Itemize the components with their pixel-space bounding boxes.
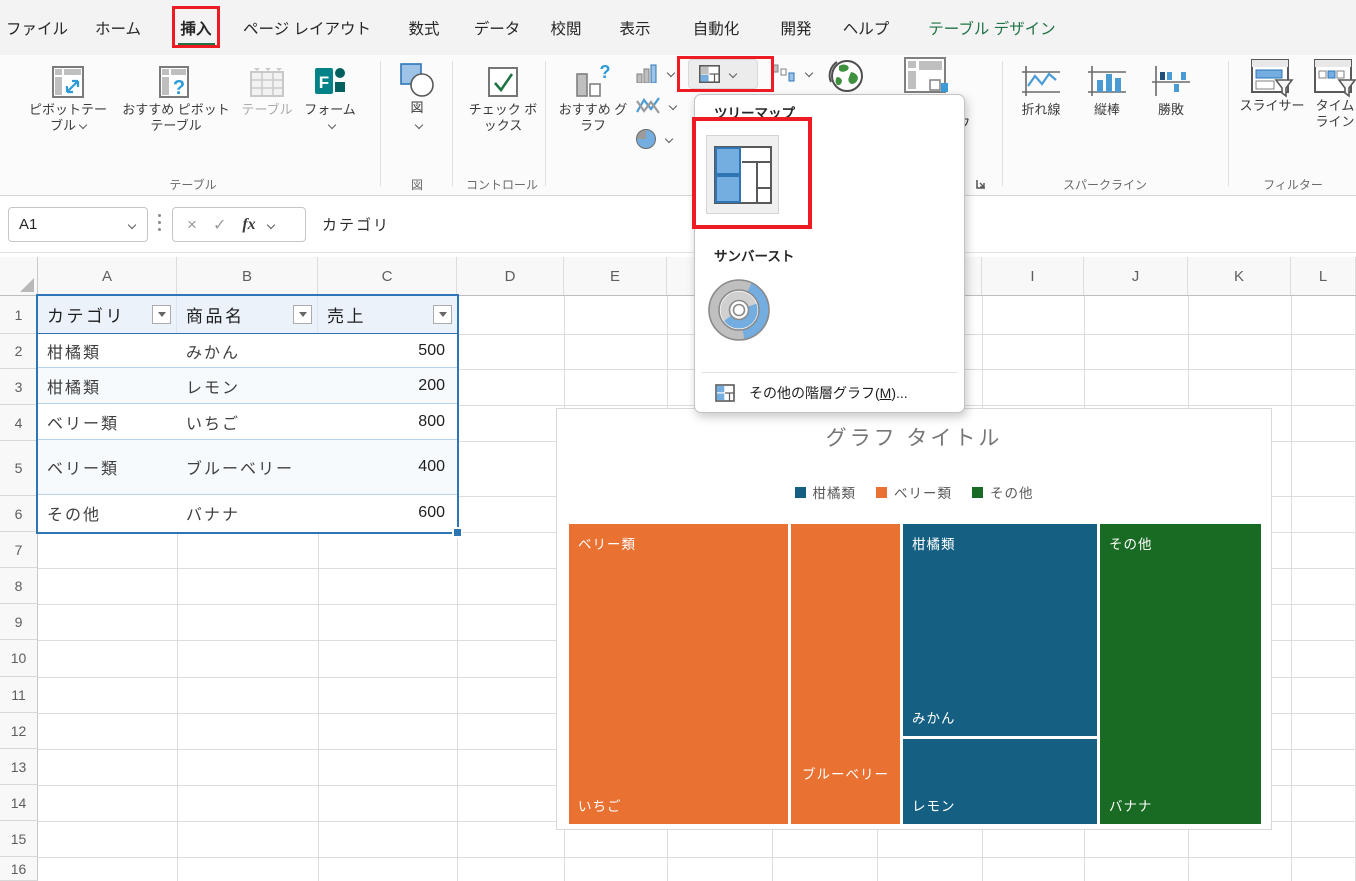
waterfall-chart-icon: [772, 63, 796, 83]
tab-page-layout[interactable]: ページ レイアウト: [243, 0, 371, 55]
legend-label: ベリー類: [894, 482, 952, 502]
cell-c4[interactable]: 800: [318, 404, 457, 439]
pivot-table-button[interactable]: ピボットテーブル: [26, 62, 110, 134]
column-header-d[interactable]: D: [457, 257, 564, 295]
group-separator: [1002, 61, 1003, 186]
sparkline-winloss-icon: [1140, 62, 1202, 102]
checkbox-button[interactable]: チェック ボックス: [466, 62, 540, 134]
table-row: ベリー類 いちご 800: [38, 404, 457, 440]
pivot-chart-button[interactable]: [903, 56, 949, 99]
group-label-table: テーブル: [133, 176, 253, 193]
recommended-chart-button[interactable]: ? おすすめ グラフ: [556, 62, 630, 134]
svg-text:?: ?: [600, 64, 611, 82]
cell-b5[interactable]: ブルーベリー: [177, 440, 318, 494]
chevron-down-icon: [667, 69, 675, 77]
legend-item[interactable]: ベリー類: [876, 482, 952, 502]
recommended-pivot-icon: ?: [118, 62, 234, 102]
treemap-item-label: みかん: [912, 707, 956, 727]
column-header-c[interactable]: C: [318, 257, 457, 295]
group-separator: [380, 61, 381, 186]
annotation-box-treemap-option: [692, 117, 812, 229]
table-label: テーブル: [241, 102, 292, 117]
forms-button[interactable]: F フォーム: [304, 62, 356, 134]
svg-text:?: ?: [173, 77, 185, 99]
globe-icon: [827, 57, 865, 95]
annotation-box-insert-tab: [172, 6, 220, 48]
header-text: 商品名: [186, 302, 245, 327]
more-hierarchy-icon: [715, 384, 735, 402]
cell-a5[interactable]: ベリー類: [38, 440, 177, 494]
charts-dialog-launcher-icon[interactable]: [974, 177, 988, 191]
sunburst-gallery-icon: [708, 279, 770, 341]
treemap-category-label: その他: [1109, 533, 1153, 553]
row-header-6[interactable]: 6: [0, 496, 38, 532]
group-label-sparklines: スパークライン: [1040, 176, 1170, 193]
tab-file[interactable]: ファイル: [6, 0, 68, 55]
illustrations-label: 図: [410, 100, 423, 115]
header-text: カテゴリ: [47, 302, 125, 327]
sparkline-winloss-label: 勝敗: [1158, 102, 1184, 117]
header-text: 売上: [327, 302, 366, 327]
recommended-pivot-button[interactable]: ? おすすめ ピボットテーブル: [118, 62, 234, 134]
group-label-controls: コントロール: [442, 176, 562, 193]
treemap-category-label: 柑橘類: [912, 533, 956, 553]
chart-title[interactable]: グラフ タイトル: [557, 422, 1271, 452]
cell-b3[interactable]: レモン: [177, 368, 318, 403]
formula-input[interactable]: カテゴリ: [322, 196, 390, 253]
chevron-down-icon: [665, 135, 673, 143]
more-hierarchy-label: その他の階層グラフ(M)...: [749, 383, 908, 403]
sparkline-line-icon: [1010, 62, 1072, 102]
column-header-i[interactable]: I: [982, 257, 1084, 295]
table-row: 柑橘類 みかん 500: [38, 334, 457, 368]
group-separator: [1228, 61, 1229, 186]
excel-table: カテゴリ 商品名 売上 柑橘類 みかん 500 柑橘類 レモン 200 ベリー類…: [38, 296, 457, 532]
treemap-block-banana[interactable]: その他 バナナ: [1100, 524, 1261, 824]
column-headers: A B C D E F G H I J K L: [0, 257, 1356, 296]
treemap-block-blueberry[interactable]: ブルーベリー: [791, 524, 900, 824]
slicer-button[interactable]: スライサー: [1238, 58, 1306, 114]
sunburst-chart-option[interactable]: [708, 279, 770, 346]
row-header-15[interactable]: 15: [0, 821, 38, 857]
cell-b4[interactable]: いちご: [177, 404, 318, 439]
cell-c5[interactable]: 400: [318, 440, 457, 494]
worksheet: A B C D E F G H I J K L 1 2 3 4 5 6 7 8 …: [0, 253, 1356, 881]
row-header-7[interactable]: 7: [0, 532, 38, 568]
legend-item[interactable]: その他: [972, 482, 1034, 502]
timeline-label: タイムライン: [1315, 98, 1354, 129]
treemap-item-label: レモン: [912, 795, 956, 815]
tab-view[interactable]: 表示: [619, 0, 650, 55]
chevron-down-icon: [805, 69, 813, 77]
filter-dropdown-icon[interactable]: [293, 305, 312, 324]
name-box[interactable]: A1: [8, 207, 148, 242]
cell-a2[interactable]: 柑橘類: [38, 334, 177, 367]
chart-legend[interactable]: 柑橘類 ベリー類 その他: [557, 482, 1271, 502]
waterfall-chart-button[interactable]: [772, 63, 812, 83]
column-header-j[interactable]: J: [1084, 257, 1188, 295]
column-header-a[interactable]: A: [38, 257, 177, 295]
treemap-chart[interactable]: グラフ タイトル 柑橘類 ベリー類 その他 ベリー類 いちご ブルーベリー: [556, 408, 1272, 830]
table-row: ベリー類 ブルーベリー 400: [38, 440, 457, 495]
header-cell-a1[interactable]: カテゴリ: [38, 296, 177, 333]
sparkline-line-label: 折れ線: [1021, 102, 1060, 117]
row-header-13[interactable]: 13: [0, 749, 38, 785]
column-header-k[interactable]: K: [1188, 257, 1291, 295]
chevron-down-icon: [79, 121, 87, 129]
cell-a3[interactable]: 柑橘類: [38, 368, 177, 403]
cell-b2[interactable]: みかん: [177, 334, 318, 367]
row-header-8[interactable]: 8: [0, 568, 38, 604]
row-header-5[interactable]: 5: [0, 441, 38, 496]
chevron-down-icon: [415, 121, 423, 129]
annotation-box-hierarchy-button: [677, 56, 774, 92]
cell-c3[interactable]: 200: [318, 368, 457, 403]
timeline-icon: [1312, 58, 1356, 98]
group-label-illustrations: 図: [394, 176, 440, 193]
svg-text:F: F: [319, 73, 329, 92]
row-header-3[interactable]: 3: [0, 369, 38, 405]
slicer-icon: [1238, 58, 1306, 98]
treemap-block-lemon[interactable]: レモン: [903, 739, 1097, 824]
column-header-l[interactable]: L: [1291, 257, 1356, 295]
chevron-down-icon: [328, 121, 336, 129]
tab-data[interactable]: データ: [474, 0, 521, 55]
legend-label: 柑橘類: [813, 482, 857, 502]
treemap-plot-area: ベリー類 いちご ブルーベリー 柑橘類 みかん レモン その他 バナナ: [569, 524, 1261, 824]
forms-label: フォーム: [304, 102, 356, 117]
insert-function-icon[interactable]: fx: [242, 216, 255, 234]
legend-swatch-orange: [876, 487, 887, 498]
tab-home[interactable]: ホーム: [95, 0, 141, 55]
illustrations-button[interactable]: 図: [394, 60, 440, 134]
header-cell-b1[interactable]: 商品名: [177, 296, 318, 333]
pivot-table-icon: [26, 62, 110, 102]
formula-controls: × ✓ fx: [172, 207, 306, 242]
cancel-icon[interactable]: ×: [187, 215, 197, 235]
line-scatter-chart-button[interactable]: [636, 96, 676, 116]
table-header-row: カテゴリ 商品名 売上: [38, 296, 457, 334]
sparkline-column-label: 縦棒: [1094, 102, 1120, 117]
row-header-9[interactable]: 9: [0, 604, 38, 640]
table-button[interactable]: テーブル: [236, 62, 298, 118]
table-row: 柑橘類 レモン 200: [38, 368, 457, 404]
treemap-item-label: ブルーベリー: [791, 762, 900, 788]
filter-dropdown-icon[interactable]: [433, 305, 452, 324]
cell-a6[interactable]: その他: [38, 495, 177, 530]
row-header-16[interactable]: 16: [0, 857, 38, 881]
table-row: その他 バナナ 600: [38, 495, 457, 530]
treemap-block-ichigo[interactable]: ベリー類 いちご: [569, 524, 788, 824]
tab-help[interactable]: ヘルプ: [843, 0, 890, 55]
legend-swatch-blue: [795, 487, 806, 498]
sunburst-section-header: サンバースト: [714, 245, 794, 265]
header-cell-c1[interactable]: 売上: [318, 296, 457, 333]
pie-chart-button[interactable]: [636, 129, 672, 149]
legend-swatch-green: [972, 487, 983, 498]
enter-icon[interactable]: ✓: [213, 215, 226, 235]
formula-bar: A1 × ✓ fx カテゴリ: [0, 196, 1356, 253]
slicer-label: スライサー: [1239, 98, 1304, 113]
treemap-block-mikan[interactable]: 柑橘類 みかん: [903, 524, 1097, 736]
forms-icon: F: [304, 62, 356, 102]
legend-label: その他: [990, 482, 1034, 502]
pie-chart-icon: [636, 129, 656, 149]
cell-c2[interactable]: 500: [318, 334, 457, 367]
scatter-chart-icon: [636, 96, 660, 116]
tab-automate[interactable]: 自動化: [693, 0, 740, 55]
treemap-item-label: バナナ: [1109, 795, 1153, 815]
cell-c6[interactable]: 600: [318, 495, 457, 530]
column-chart-button[interactable]: [636, 63, 674, 83]
tab-review[interactable]: 校閲: [550, 0, 581, 55]
group-separator: [545, 61, 546, 186]
chevron-down-icon: [128, 220, 136, 228]
tab-developer[interactable]: 開発: [780, 0, 811, 55]
shapes-icon: [394, 60, 440, 100]
group-label-filters: フィルター: [1238, 176, 1348, 193]
pivot-chart-icon: [903, 56, 949, 94]
row-header-10[interactable]: 10: [0, 640, 38, 677]
table-resize-handle[interactable]: [454, 529, 461, 536]
select-all-corner[interactable]: [0, 257, 38, 295]
recommended-chart-label: おすすめ グラフ: [559, 102, 628, 133]
column-header-e[interactable]: E: [564, 257, 667, 295]
row-header-1[interactable]: 1: [0, 296, 38, 334]
checkbox-label: チェック ボックス: [469, 102, 538, 133]
pivot-table-label: ピボットテーブル: [29, 102, 107, 133]
row-header-11[interactable]: 11: [0, 677, 38, 713]
formula-bar-divider: [158, 214, 161, 231]
treemap-item-label: いちご: [578, 795, 622, 815]
row-header-2[interactable]: 2: [0, 334, 38, 369]
legend-item[interactable]: 柑橘類: [795, 482, 857, 502]
name-box-value: A1: [19, 216, 37, 233]
tab-table-design[interactable]: テーブル デザイン: [928, 0, 1055, 55]
tab-formulas[interactable]: 数式: [408, 0, 439, 55]
row-header-12[interactable]: 12: [0, 713, 38, 749]
menu-separator: [702, 372, 957, 373]
checkbox-icon: [466, 62, 540, 102]
table-icon: [236, 62, 298, 102]
filter-dropdown-icon[interactable]: [152, 305, 171, 324]
sparkline-winloss-button[interactable]: 勝敗: [1140, 62, 1202, 118]
group-separator: [452, 61, 453, 186]
cell-b6[interactable]: バナナ: [177, 495, 318, 530]
more-hierarchy-charts-item[interactable]: その他の階層グラフ(M)...: [695, 378, 964, 408]
cell-a4[interactable]: ベリー類: [38, 404, 177, 439]
sparkline-column-button[interactable]: 縦棒: [1076, 62, 1138, 118]
row-header-4[interactable]: 4: [0, 405, 38, 441]
chevron-down-icon: [669, 102, 677, 110]
row-header-14[interactable]: 14: [0, 785, 38, 821]
treemap-category-label: ベリー類: [578, 533, 636, 553]
column-header-b[interactable]: B: [177, 257, 318, 295]
recommended-pivot-label: おすすめ ピボットテーブル: [122, 102, 230, 133]
recommended-chart-icon: ?: [556, 62, 630, 102]
chevron-down-icon: [266, 220, 274, 228]
column-chart-icon: [636, 63, 658, 83]
sparkline-column-icon: [1076, 62, 1138, 102]
timeline-button[interactable]: タイムライン: [1312, 58, 1356, 130]
sparkline-line-button[interactable]: 折れ線: [1010, 62, 1072, 118]
